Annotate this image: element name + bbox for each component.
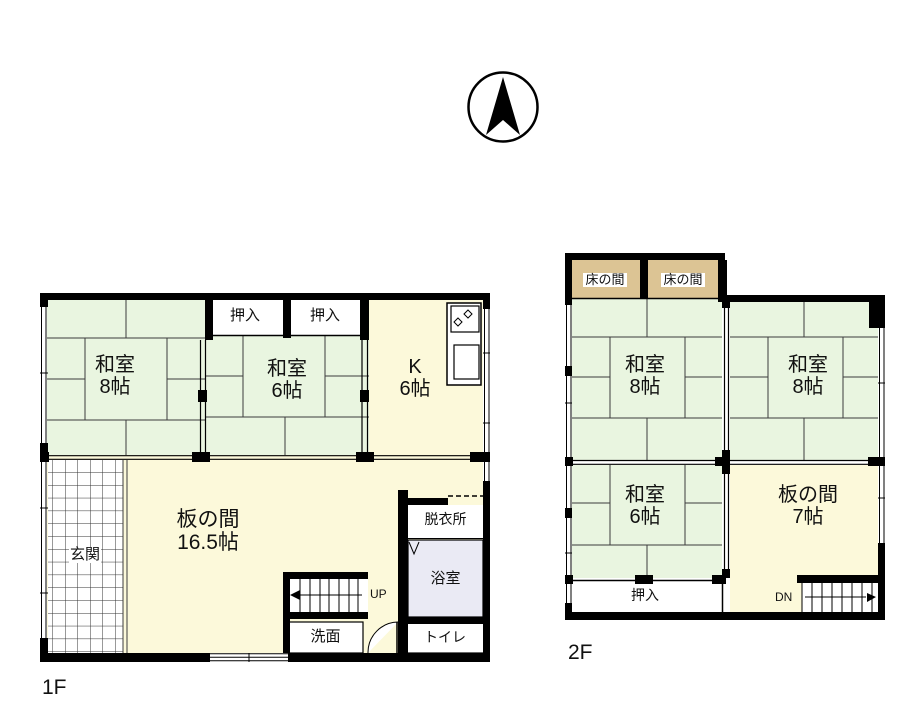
floor-label-1f: 1F — [42, 676, 67, 700]
label-washitsu8-right-2f: 和室 8帖 — [758, 355, 858, 398]
floorplan-canvas: 和室 8帖 押入 押入 和室 6帖 K 6帖 玄関 板の間 16.5帖 脱衣所 … — [0, 0, 903, 724]
room-size: 6帖 — [595, 507, 695, 529]
room-name: 和室 — [595, 485, 695, 507]
north-compass — [465, 69, 541, 145]
floorplan-1f-drawing — [40, 293, 490, 662]
label-tokonoma-left-2f: 床の間 — [573, 273, 637, 287]
floor-label-2f: 2F — [568, 641, 593, 665]
label-oshiire-left-1f: 押入 — [210, 308, 280, 324]
window-bottom-1f — [210, 653, 288, 662]
floorplan-2f: 床の間 床の間 和室 8帖 和室 8帖 和室 6帖 板の間 7帖 押入 DN — [565, 253, 885, 620]
stove-icon — [451, 306, 479, 332]
rooms-1f — [42, 295, 488, 660]
label-yokushitsu-1f: 浴室 — [408, 571, 483, 587]
label-oshiire-2f: 押入 — [610, 588, 680, 603]
room-size: 7帖 — [758, 507, 858, 529]
label-kitchen-1f: K 6帖 — [365, 357, 465, 400]
room-name: 板の間 — [758, 485, 858, 507]
room-name: 和室 — [65, 355, 165, 377]
label-senmen-1f: 洗面 — [288, 629, 363, 645]
label-genkan-1f: 玄関 — [55, 547, 115, 563]
room-size: 8帖 — [595, 377, 695, 399]
room-name: 和室 — [237, 359, 337, 381]
label-washitsu6-2f: 和室 6帖 — [595, 485, 695, 528]
label-stairs-up-1f: UP — [370, 588, 396, 601]
label-stairs-dn-2f: DN — [775, 591, 801, 604]
label-tokonoma-right-2f: 床の間 — [651, 273, 715, 287]
room-size: 16.5帖 — [138, 532, 278, 555]
label-datsuijo-1f: 脱衣所 — [408, 512, 483, 527]
label-itanoma-1f: 板の間 16.5帖 — [138, 509, 278, 554]
room-size: 6帖 — [237, 381, 337, 403]
room-size: 8帖 — [65, 377, 165, 399]
room-name: 板の間 — [138, 509, 278, 532]
room-name: 和室 — [595, 355, 695, 377]
floorplan-1f: 和室 8帖 押入 押入 和室 6帖 K 6帖 玄関 板の間 16.5帖 脱衣所 … — [40, 293, 490, 662]
label-toire-1f: トイレ — [405, 630, 485, 645]
label-washitsu8-1f: 和室 8帖 — [65, 355, 165, 398]
room-size: 6帖 — [365, 379, 465, 401]
floorplan-2f-drawing — [565, 253, 885, 620]
label-washitsu6-1f: 和室 6帖 — [237, 359, 337, 402]
room-name: 和室 — [758, 355, 858, 377]
label-washitsu8-left-2f: 和室 8帖 — [595, 355, 695, 398]
north-arrow-icon — [465, 69, 541, 145]
room-size: 8帖 — [758, 377, 858, 399]
label-oshiire-right-1f: 押入 — [290, 308, 360, 324]
label-itanoma-2f: 板の間 7帖 — [758, 485, 858, 528]
room-name: K — [365, 357, 465, 379]
